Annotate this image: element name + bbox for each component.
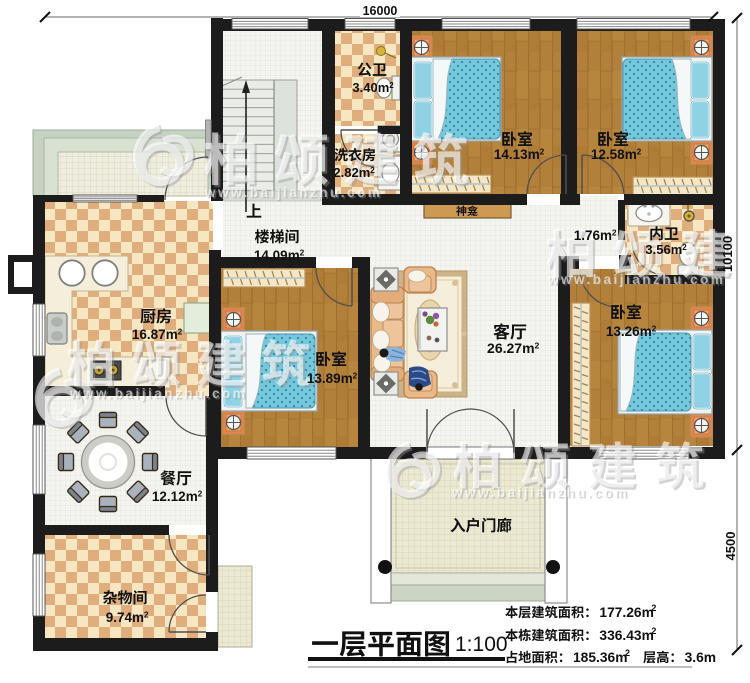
svg-text:12.12m: 12.12m [152,489,198,504]
svg-text:2: 2 [682,243,687,252]
svg-text:www.baijianzhu.com: www.baijianzhu.com [69,386,247,401]
svg-text:2: 2 [637,147,642,157]
svg-text:www.baijianzhu.com: www.baijianzhu.com [451,485,629,500]
svg-text:3.40m: 3.40m [352,80,389,95]
svg-text:185.36m: 185.36m [573,650,627,665]
svg-text:14.13m: 14.13m [494,147,540,162]
svg-text:4500: 4500 [723,532,738,561]
svg-text:16000: 16000 [363,4,398,18]
svg-text:www.baijianzhu.com: www.baijianzhu.com [547,272,725,287]
svg-text:2: 2 [540,147,545,157]
svg-text:2: 2 [144,610,149,620]
svg-text:2: 2 [198,489,203,499]
svg-text:16.87m: 16.87m [132,327,178,342]
svg-text:2: 2 [370,166,375,175]
svg-text:336.43m: 336.43m [599,628,653,643]
svg-text:26.27m: 26.27m [487,340,534,356]
svg-text:13.89m: 13.89m [307,371,353,386]
svg-text:2: 2 [300,248,305,258]
svg-text:2: 2 [353,371,358,381]
svg-text:2: 2 [612,228,617,238]
svg-text:2: 2 [389,81,394,90]
svg-text:2: 2 [625,648,630,658]
svg-text:www.baijianzhu.com: www.baijianzhu.com [204,185,382,200]
svg-text:12.58m: 12.58m [591,147,637,162]
svg-text:177.26m: 177.26m [599,605,653,620]
svg-text:2: 2 [652,324,657,334]
svg-text:2.82m: 2.82m [333,165,370,180]
svg-text:1.76m: 1.76m [574,228,612,243]
svg-text:2: 2 [178,327,183,337]
svg-text:1:100: 1:100 [455,633,508,656]
svg-text:2: 2 [651,603,656,613]
svg-text:9.74m: 9.74m [106,610,144,625]
svg-text:3.56m: 3.56m [645,242,682,257]
svg-text:10100: 10100 [720,236,735,272]
svg-text:2: 2 [535,341,540,351]
svg-text:3.6m: 3.6m [685,650,716,665]
svg-text:13.26m: 13.26m [606,324,652,339]
svg-text:14.09m: 14.09m [254,248,300,263]
svg-text:2: 2 [651,626,656,636]
